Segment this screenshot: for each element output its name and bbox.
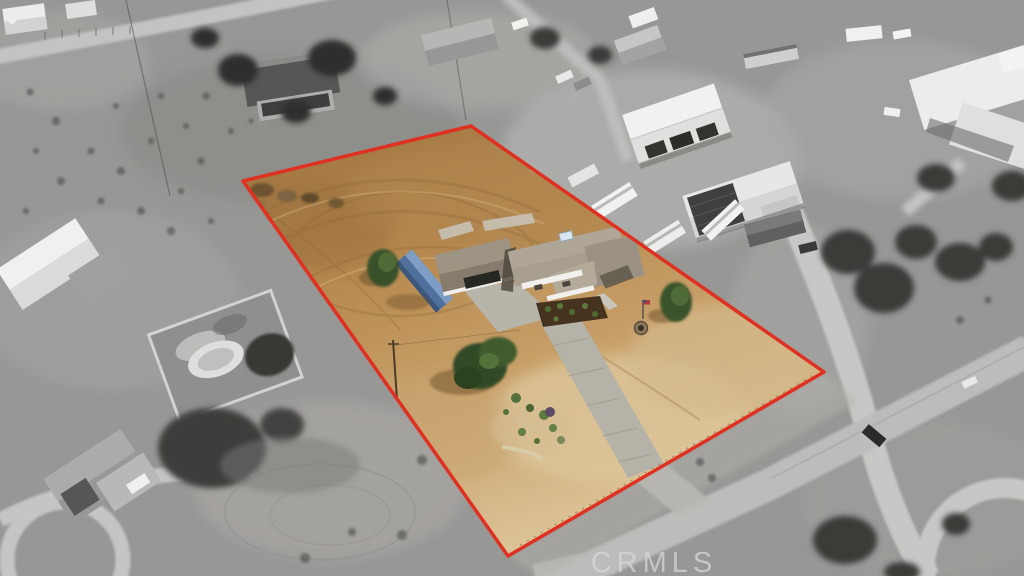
crmls-watermark: CRMLS (591, 547, 718, 576)
tree-shadow (220, 437, 360, 493)
car-topleft (8, 16, 16, 24)
tree-bottomleft-2 (260, 408, 304, 442)
fire-pit (635, 322, 648, 335)
aerial-photo: CRMLS (0, 0, 1024, 576)
aerial-photo-stage: CRMLS (0, 0, 1024, 576)
purple-bush (545, 407, 555, 417)
container-shadow (386, 294, 430, 310)
